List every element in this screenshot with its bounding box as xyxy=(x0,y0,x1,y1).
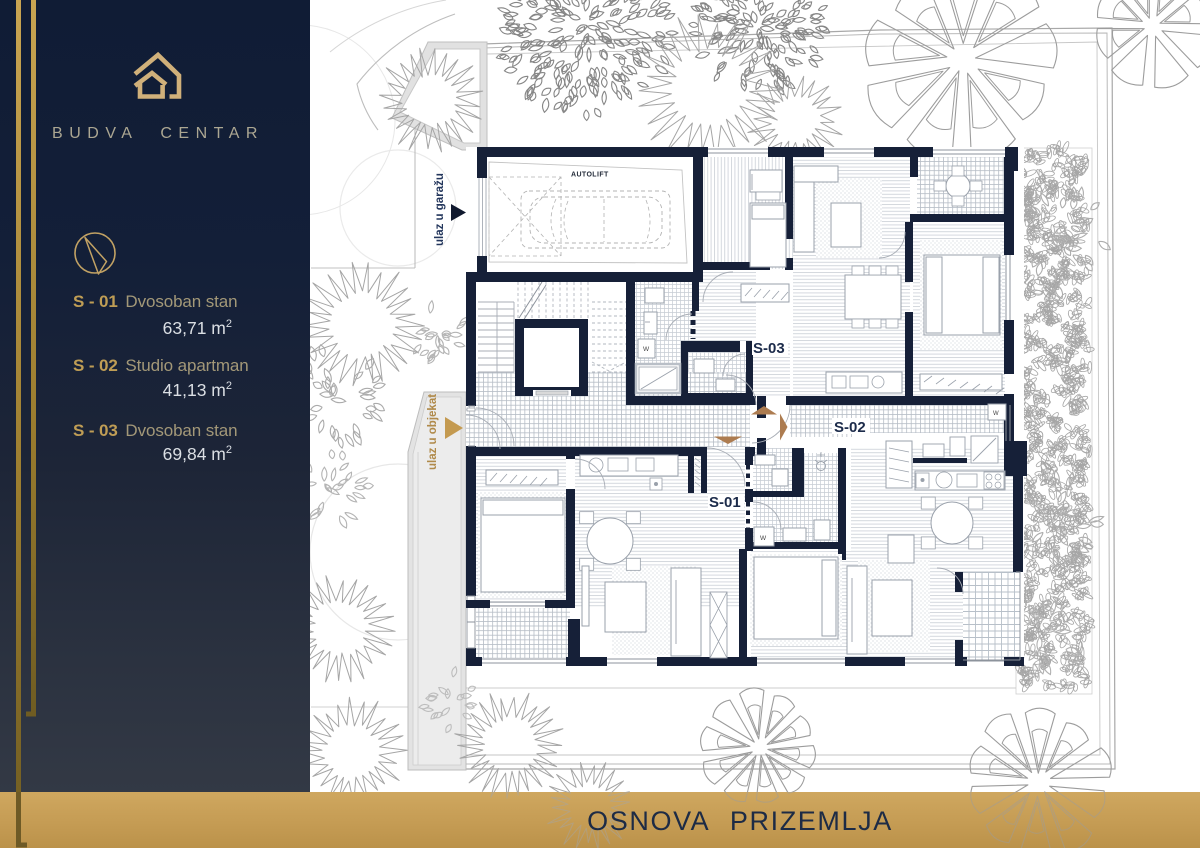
svg-text:AUTOLIFT: AUTOLIFT xyxy=(571,172,609,179)
svg-text:ulaz u objekat: ulaz u objekat xyxy=(427,394,439,470)
svg-text:W: W xyxy=(760,535,767,542)
svg-text:W: W xyxy=(993,411,999,417)
svg-text:S-03: S-03 xyxy=(753,340,785,357)
svg-text:ulaz u garažu: ulaz u garažu xyxy=(434,173,446,246)
svg-text:S-01: S-01 xyxy=(709,494,741,511)
svg-text:S-02: S-02 xyxy=(834,419,866,436)
svg-text:W: W xyxy=(643,346,650,353)
